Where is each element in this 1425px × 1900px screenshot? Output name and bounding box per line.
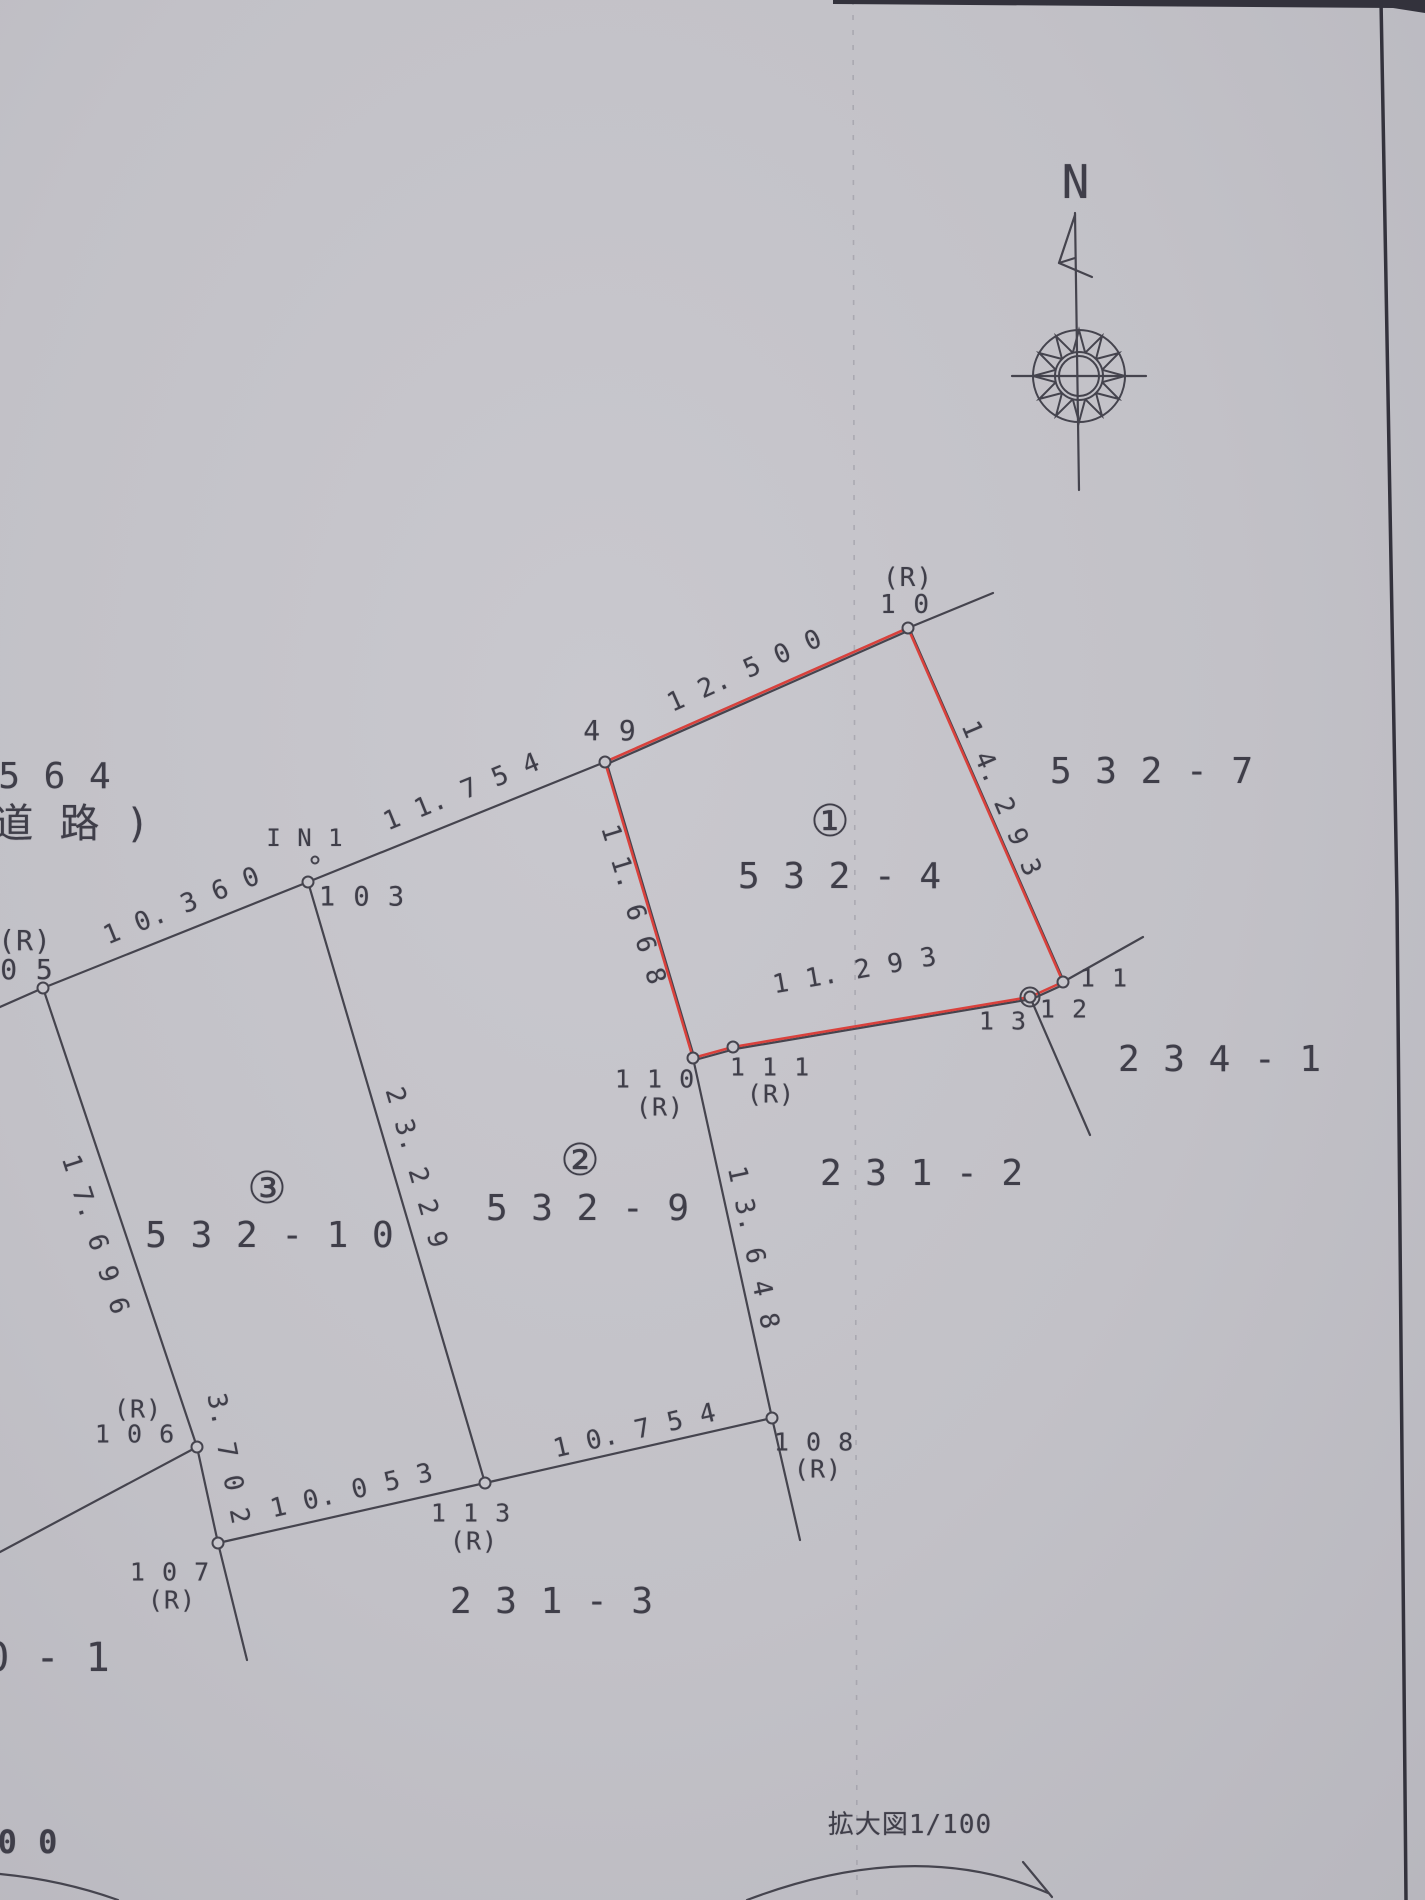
parcel-564: 5 6 4 <box>0 759 112 795</box>
point-49-label: 4 9 <box>583 717 637 745</box>
scale-note: 拡大図1/100 <box>828 1812 992 1838</box>
parcel-532-10: 5 3 2 - 1 0 <box>145 1218 394 1254</box>
parcel-564-road: 道 路 ) <box>0 804 151 844</box>
point-113-r-label: (R) <box>450 1529 498 1554</box>
point-108-r-label: (R) <box>794 1457 842 1482</box>
len-11-668: 1 1. 6 6 8 <box>596 822 670 989</box>
point-106-r-label: (R) <box>114 1397 162 1422</box>
point-10-label: 1 0 <box>880 592 930 618</box>
point-110-label: 1 1 0 <box>615 1067 695 1092</box>
len-17-696: 1 7. 6 9 6 <box>57 1152 133 1318</box>
map-labels-layer: 5 6 4道 路 )(R)0 51 0. 3 6 0I N 11 0 31 1.… <box>0 0 1425 1900</box>
point-111-r-label: (R) <box>747 1082 795 1107</box>
parcel-532-7: 5 3 2 - 7 <box>1050 754 1254 790</box>
len-11-293: 1 1. 2 9 3 <box>771 944 940 999</box>
len-13-648: 1 3. 6 4 8 <box>723 1164 783 1332</box>
len-11-754: 1 1. 7 5 4 <box>380 749 544 835</box>
point-11-label: 1 1 <box>1080 966 1128 991</box>
parcel-3-mark: ③ <box>247 1167 286 1211</box>
point-111-label: 1 1 1 <box>730 1055 810 1080</box>
len-10-053: 1 0. 0 5 3 <box>268 1460 436 1523</box>
point-108-label: 1 0 8 <box>774 1430 854 1455</box>
point-12-label: 1 2 <box>1040 997 1088 1022</box>
north-n-label: N <box>1062 159 1091 205</box>
point-107-r-label: (R) <box>148 1588 196 1613</box>
scanned-page: 5 6 4道 路 )(R)0 51 0. 3 6 0I N 11 0 31 1.… <box>0 0 1425 1900</box>
point-103-label: 1 0 3 <box>319 884 405 911</box>
len-3-702: 3. 7 0 2 <box>203 1391 254 1527</box>
point-110-r-label: (R) <box>636 1095 684 1120</box>
parcel-532-9: 5 3 2 - 9 <box>486 1191 690 1227</box>
point-13-label: 1 3 <box>979 1009 1027 1034</box>
parcel-2-mark: ② <box>560 1139 599 1183</box>
len-14-293: 1 4. 2 9 3 <box>956 717 1045 880</box>
bottom-00: 0 0 <box>0 1826 58 1858</box>
len-12-500: 1 2. 5 0 0 <box>664 625 827 716</box>
point-in1-label: I N 1 <box>266 826 343 850</box>
parcel-532-4: 5 3 2 - 4 <box>738 859 942 895</box>
point-05-label: 0 5 <box>0 956 54 984</box>
parcel-234-1: 2 3 4 - 1 <box>1118 1042 1322 1078</box>
len-10-360: 1 0. 3 6 0 <box>100 863 264 949</box>
point-106-label: 1 0 6 <box>95 1422 175 1447</box>
point-107-label: 1 0 7 <box>130 1560 210 1585</box>
point-113-label: 1 1 3 <box>431 1501 511 1526</box>
point-10-r-label: (R) <box>883 565 933 591</box>
parcel-231-2: 2 3 1 - 2 <box>820 1156 1024 1192</box>
parcel-1-mark: ① <box>810 800 849 844</box>
len-10-754: 1 0. 7 5 4 <box>551 1400 719 1463</box>
parcel-231-3: 2 3 1 - 3 <box>450 1584 654 1620</box>
point-05-r-label: (R) <box>0 927 52 955</box>
parcel-0-1: 0 - 1 <box>0 1638 111 1678</box>
